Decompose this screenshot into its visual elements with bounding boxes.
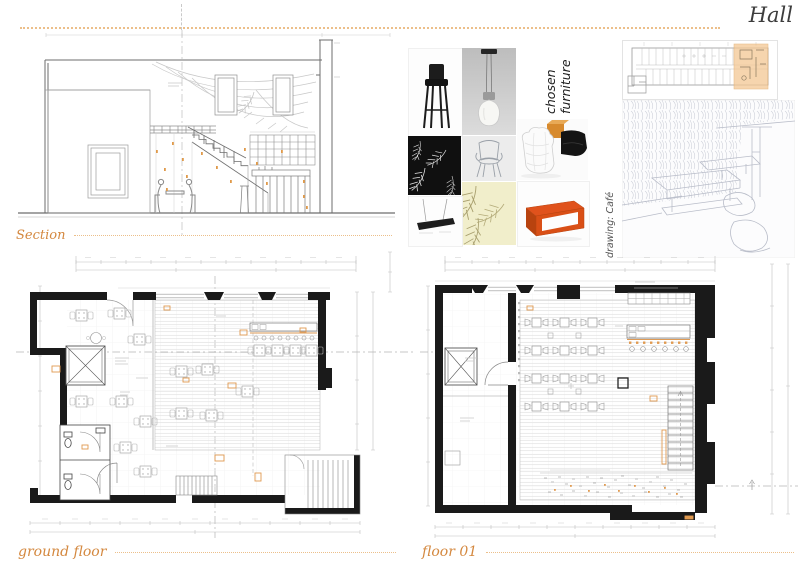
section-label-row: Section bbox=[16, 228, 392, 243]
ghost-chair-image bbox=[462, 136, 516, 181]
keyplan-highlight bbox=[734, 44, 768, 89]
linear-pendant-light-image bbox=[409, 197, 462, 246]
ground-window-sills bbox=[156, 294, 308, 298]
cream-feather-wallpaper-image bbox=[462, 182, 516, 245]
ground-floor-label: ground floor bbox=[18, 544, 106, 560]
presentation-board: Hall bbox=[0, 0, 800, 566]
keyplan-drawing bbox=[622, 40, 778, 100]
floor01-shaft bbox=[445, 348, 477, 385]
section-label-rule bbox=[74, 235, 392, 236]
moodboard-tile-black-feathers bbox=[408, 136, 461, 195]
black-feather-pattern-image bbox=[408, 136, 461, 195]
centerline-stub bbox=[181, 4, 182, 30]
section-left-room bbox=[45, 90, 150, 213]
ground-floor-label-rule bbox=[115, 552, 396, 553]
floor01-plan bbox=[420, 246, 798, 546]
moodboard-tile-bar-stool bbox=[408, 48, 463, 137]
floor01-label-row: floor 01 bbox=[422, 544, 794, 560]
moodboard-tile-label: chosen furniture bbox=[517, 48, 588, 118]
section-cafe-space bbox=[150, 62, 316, 213]
section-people bbox=[155, 179, 195, 213]
section-top-dimension bbox=[46, 33, 390, 37]
moodboard-tile-quilted-scene bbox=[517, 119, 588, 180]
quilted-armchair-orange-box-black-sofa-image bbox=[517, 119, 588, 180]
section-shelving bbox=[250, 132, 315, 165]
sketch-drawing bbox=[622, 100, 795, 258]
moodboard-tile-orange-table bbox=[517, 181, 590, 247]
moodboard-label: chosen furniture bbox=[543, 54, 573, 114]
section-drawing bbox=[16, 30, 398, 242]
ground-floor-plan bbox=[16, 246, 414, 546]
moodboard-tile-cream-feathers bbox=[462, 182, 516, 245]
bar-stool-image bbox=[409, 49, 462, 136]
section-bar bbox=[240, 166, 310, 213]
ground-wc-block bbox=[60, 425, 110, 500]
floor01-label: floor 01 bbox=[422, 544, 477, 560]
header-rule bbox=[20, 27, 720, 29]
ground-elevator-shaft bbox=[66, 346, 105, 385]
orange-coffee-table-image bbox=[518, 182, 589, 246]
moodboard-tile-ghost-chair bbox=[462, 136, 516, 181]
section-orange-marks bbox=[156, 142, 308, 209]
moodboard-tile-pendant-lamp bbox=[462, 48, 516, 135]
moodboard-tile-linear-light bbox=[408, 196, 463, 247]
section-envelope bbox=[18, 40, 395, 217]
floor01-window-sills bbox=[488, 287, 615, 291]
moodboard: chosen furniture bbox=[408, 48, 588, 245]
ground-floor-label-row: ground floor bbox=[18, 544, 396, 560]
page-title: Hall bbox=[749, 3, 793, 27]
section-label: Section bbox=[16, 228, 65, 243]
floor01-label-rule bbox=[486, 552, 794, 553]
pendant-bulb-lamp-image bbox=[462, 48, 516, 135]
